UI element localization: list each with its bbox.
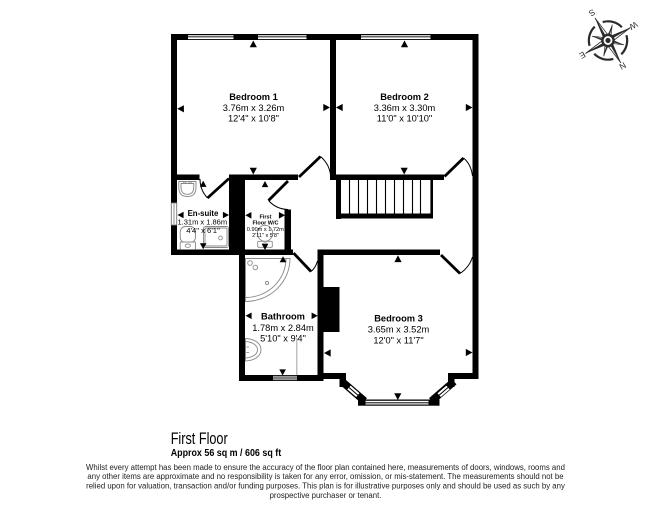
svg-text:1.78m x 2.84m: 1.78m x 2.84m xyxy=(252,323,314,333)
svg-text:12'4" x 10'8": 12'4" x 10'8" xyxy=(228,113,279,123)
svg-text:Bathroom: Bathroom xyxy=(261,311,305,321)
svg-text:3.36m x 3.30m: 3.36m x 3.30m xyxy=(374,103,436,113)
svg-text:12'0" x 11'7": 12'0" x 11'7" xyxy=(373,335,423,345)
svg-text:prospective purchaser or tenan: prospective purchaser or tenant. xyxy=(270,491,382,500)
svg-text:First: First xyxy=(260,214,272,220)
svg-text:Bedroom 1: Bedroom 1 xyxy=(229,92,278,102)
svg-text:First Floor: First Floor xyxy=(171,430,228,448)
svg-text:E: E xyxy=(577,50,587,62)
svg-text:2'11" x 5'8": 2'11" x 5'8" xyxy=(252,233,279,239)
svg-text:Approx 56 sq m / 606 sq ft: Approx 56 sq m / 606 sq ft xyxy=(171,448,282,459)
svg-text:Whilst every attempt has been: Whilst every attempt has been made to en… xyxy=(86,463,565,472)
svg-text:3.76m x 3.26m: 3.76m x 3.26m xyxy=(223,103,285,113)
svg-text:Bedroom 3: Bedroom 3 xyxy=(374,313,423,323)
svg-text:N: N xyxy=(618,60,628,72)
svg-text:Bedroom 2: Bedroom 2 xyxy=(380,92,429,102)
svg-text:any other items are approximat: any other items are approximate and no r… xyxy=(87,472,563,481)
svg-text:5'10" x 9'4": 5'10" x 9'4" xyxy=(260,334,306,344)
svg-text:W: W xyxy=(628,19,640,32)
svg-text:relied upon for valuation, tra: relied upon for valuation, transaction a… xyxy=(86,482,565,491)
svg-text:4'4" x 6'1": 4'4" x 6'1" xyxy=(186,226,220,235)
svg-text:Floor W/C: Floor W/C xyxy=(253,221,279,227)
svg-text:0.90m x 1.72m: 0.90m x 1.72m xyxy=(247,227,284,233)
svg-text:S: S xyxy=(587,7,597,19)
svg-text:3.65m x 3.52m: 3.65m x 3.52m xyxy=(368,324,430,334)
svg-text:11'0" x 10'10": 11'0" x 10'10" xyxy=(377,113,432,123)
